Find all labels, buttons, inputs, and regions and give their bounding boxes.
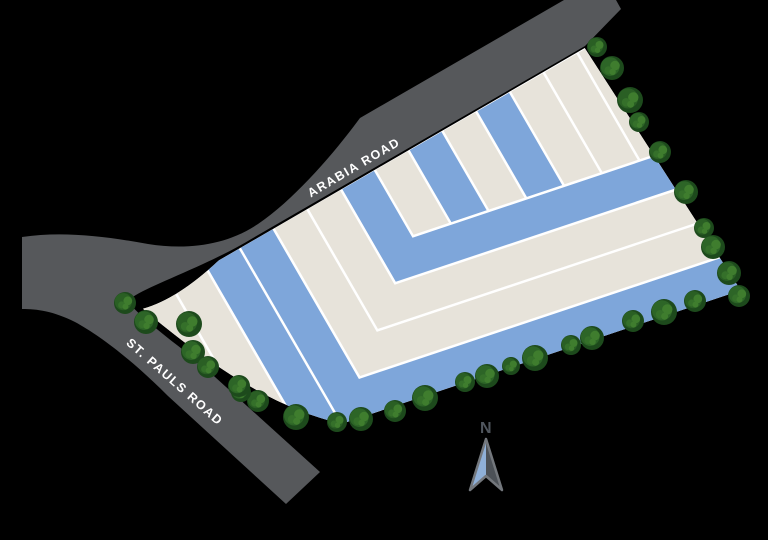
tree-icon [561,335,581,355]
tree-icon [228,375,250,397]
tree-icon [327,412,347,432]
tree-icon [349,407,373,431]
compass: N [470,420,502,490]
tree-icon [717,261,741,285]
compass-n-label: N [480,420,492,437]
tree-icon [176,311,202,337]
tree-icon [384,400,406,422]
tree-icon [475,364,499,388]
tree-icon [197,356,219,378]
tree-icon [622,310,644,332]
tree-icon [283,404,309,430]
tree-icon [587,37,607,57]
tree-icon [134,310,158,334]
tree-icon [455,372,475,392]
tree-icon [580,326,604,350]
tree-icon [114,292,136,314]
tree-icon [522,345,548,371]
tree-icon [684,290,706,312]
tree-icon [412,385,438,411]
site-plan-canvas: ARABIA ROAD ST. PAULS ROAD N [0,0,768,540]
tree-icon [701,235,725,259]
tree-icon [629,112,649,132]
tree-icon [502,357,520,375]
tree-icon [600,56,624,80]
site-plan-map: ARABIA ROAD ST. PAULS ROAD N [0,0,768,540]
tree-icon [651,299,677,325]
tree-icon [649,141,671,163]
tree-icon [674,180,698,204]
tree-icon [694,218,714,238]
tree-icon [728,285,750,307]
tree-icon [617,87,643,113]
